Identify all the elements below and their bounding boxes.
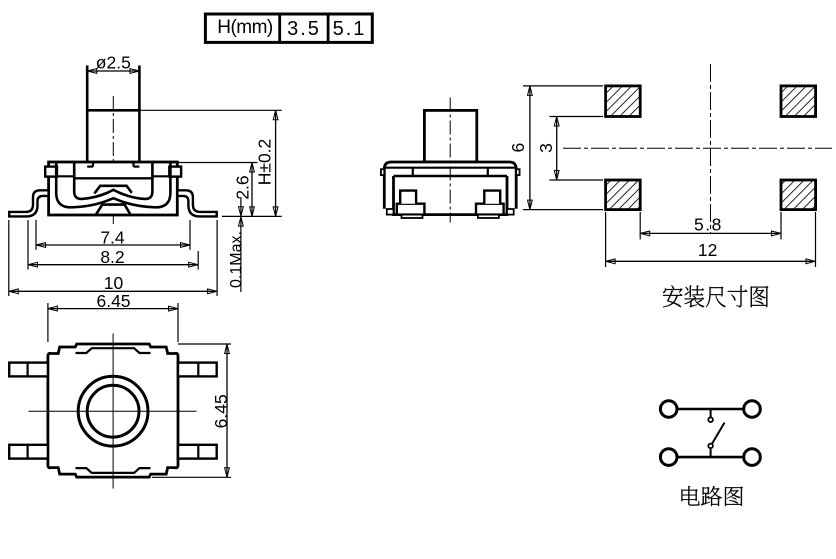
svg-text:H(mm): H(mm) bbox=[217, 17, 273, 38]
svg-text:7.4: 7.4 bbox=[100, 227, 125, 247]
svg-text:5.1: 5.1 bbox=[333, 18, 367, 40]
svg-text:H±0.2: H±0.2 bbox=[255, 139, 275, 186]
svg-text:6: 6 bbox=[508, 143, 528, 153]
svg-text:6.45: 6.45 bbox=[211, 394, 231, 428]
svg-text:5.8: 5.8 bbox=[694, 214, 723, 234]
svg-text:0.1Max.: 0.1Max. bbox=[228, 231, 245, 288]
svg-text:8.2: 8.2 bbox=[100, 247, 124, 267]
svg-text:2.6: 2.6 bbox=[232, 175, 252, 199]
svg-text:10: 10 bbox=[104, 273, 124, 293]
svg-text:6.45: 6.45 bbox=[96, 291, 130, 311]
svg-text:3: 3 bbox=[536, 143, 556, 153]
svg-text:3.5: 3.5 bbox=[287, 18, 321, 40]
svg-text:ø2.5: ø2.5 bbox=[96, 52, 131, 72]
svg-text:12: 12 bbox=[698, 240, 717, 260]
